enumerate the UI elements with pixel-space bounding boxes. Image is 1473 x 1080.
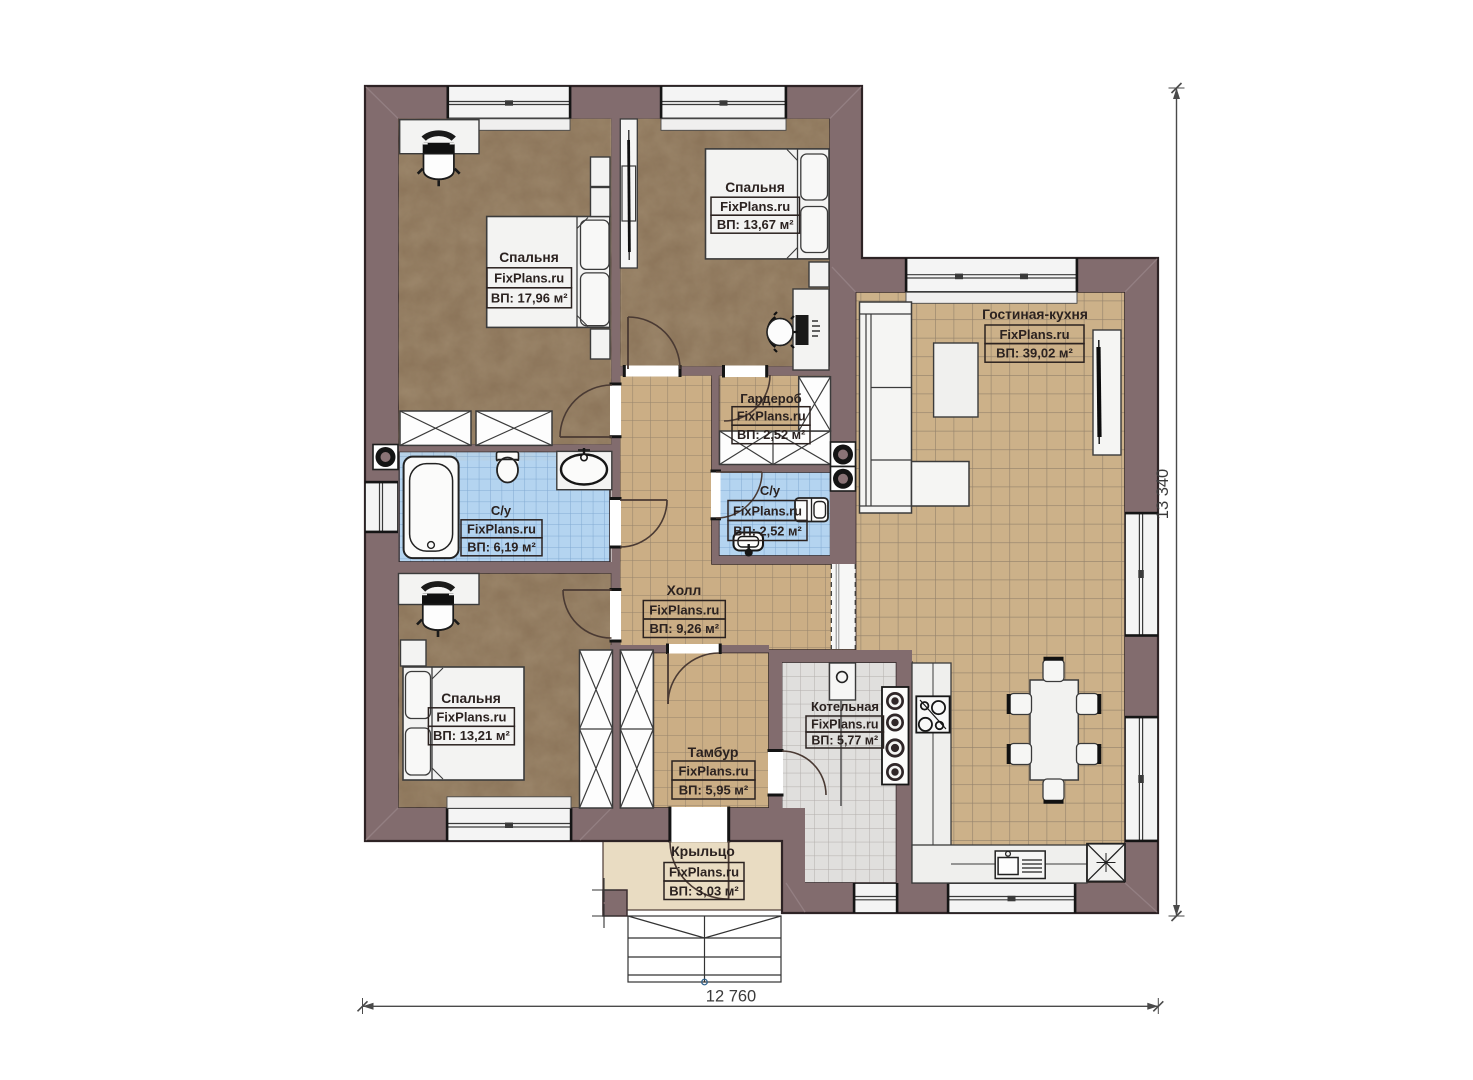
svg-text:FixPlans.ru: FixPlans.ru <box>811 718 878 732</box>
svg-text:ВП: 39,02 м²: ВП: 39,02 м² <box>996 346 1073 361</box>
svg-text:ВП: 17,96 м²: ВП: 17,96 м² <box>491 291 568 306</box>
svg-text:Гостиная-кухня: Гостиная-кухня <box>982 307 1088 322</box>
svg-text:ВП: 5,95 м²: ВП: 5,95 м² <box>679 783 749 798</box>
svg-text:Гардероб: Гардероб <box>740 391 801 406</box>
svg-text:FixPlans.ru: FixPlans.ru <box>436 710 506 725</box>
svg-text:Котельная: Котельная <box>811 699 879 714</box>
svg-text:Спальня: Спальня <box>499 250 559 265</box>
svg-text:12 760: 12 760 <box>706 988 756 1006</box>
svg-text:С/у: С/у <box>491 503 512 518</box>
svg-text:С/у: С/у <box>760 483 781 498</box>
svg-text:FixPlans.ru: FixPlans.ru <box>999 327 1069 342</box>
svg-text:ВП: 13,21 м²: ВП: 13,21 м² <box>433 728 510 743</box>
svg-text:FixPlans.ru: FixPlans.ru <box>669 865 739 880</box>
svg-text:ВП: 2,52 м²: ВП: 2,52 м² <box>733 524 801 539</box>
svg-text:FixPlans.ru: FixPlans.ru <box>733 504 802 519</box>
svg-text:FixPlans.ru: FixPlans.ru <box>678 764 748 779</box>
svg-text:13 340: 13 340 <box>1154 469 1172 519</box>
svg-text:Крыльцо: Крыльцо <box>671 843 735 859</box>
svg-text:Холл: Холл <box>667 583 702 598</box>
svg-text:Тамбур: Тамбур <box>688 744 739 760</box>
svg-text:ВП: 2,52 м²: ВП: 2,52 м² <box>737 427 805 442</box>
svg-text:FixPlans.ru: FixPlans.ru <box>649 603 719 618</box>
svg-text:ВП: 9,26 м²: ВП: 9,26 м² <box>650 621 720 636</box>
svg-text:ВП: 6,19 м²: ВП: 6,19 м² <box>467 540 535 555</box>
svg-text:ВП: 13,67 м²: ВП: 13,67 м² <box>717 217 794 232</box>
svg-text:Спальня: Спальня <box>725 180 785 195</box>
svg-text:Спальня: Спальня <box>441 691 501 706</box>
svg-text:ВП: 3,03 м²: ВП: 3,03 м² <box>669 884 739 899</box>
svg-text:FixPlans.ru: FixPlans.ru <box>720 199 790 214</box>
svg-text:FixPlans.ru: FixPlans.ru <box>737 409 806 424</box>
svg-text:FixPlans.ru: FixPlans.ru <box>494 271 564 286</box>
svg-text:FixPlans.ru: FixPlans.ru <box>467 522 536 537</box>
svg-text:ВП: 5,77 м²: ВП: 5,77 м² <box>811 734 878 748</box>
